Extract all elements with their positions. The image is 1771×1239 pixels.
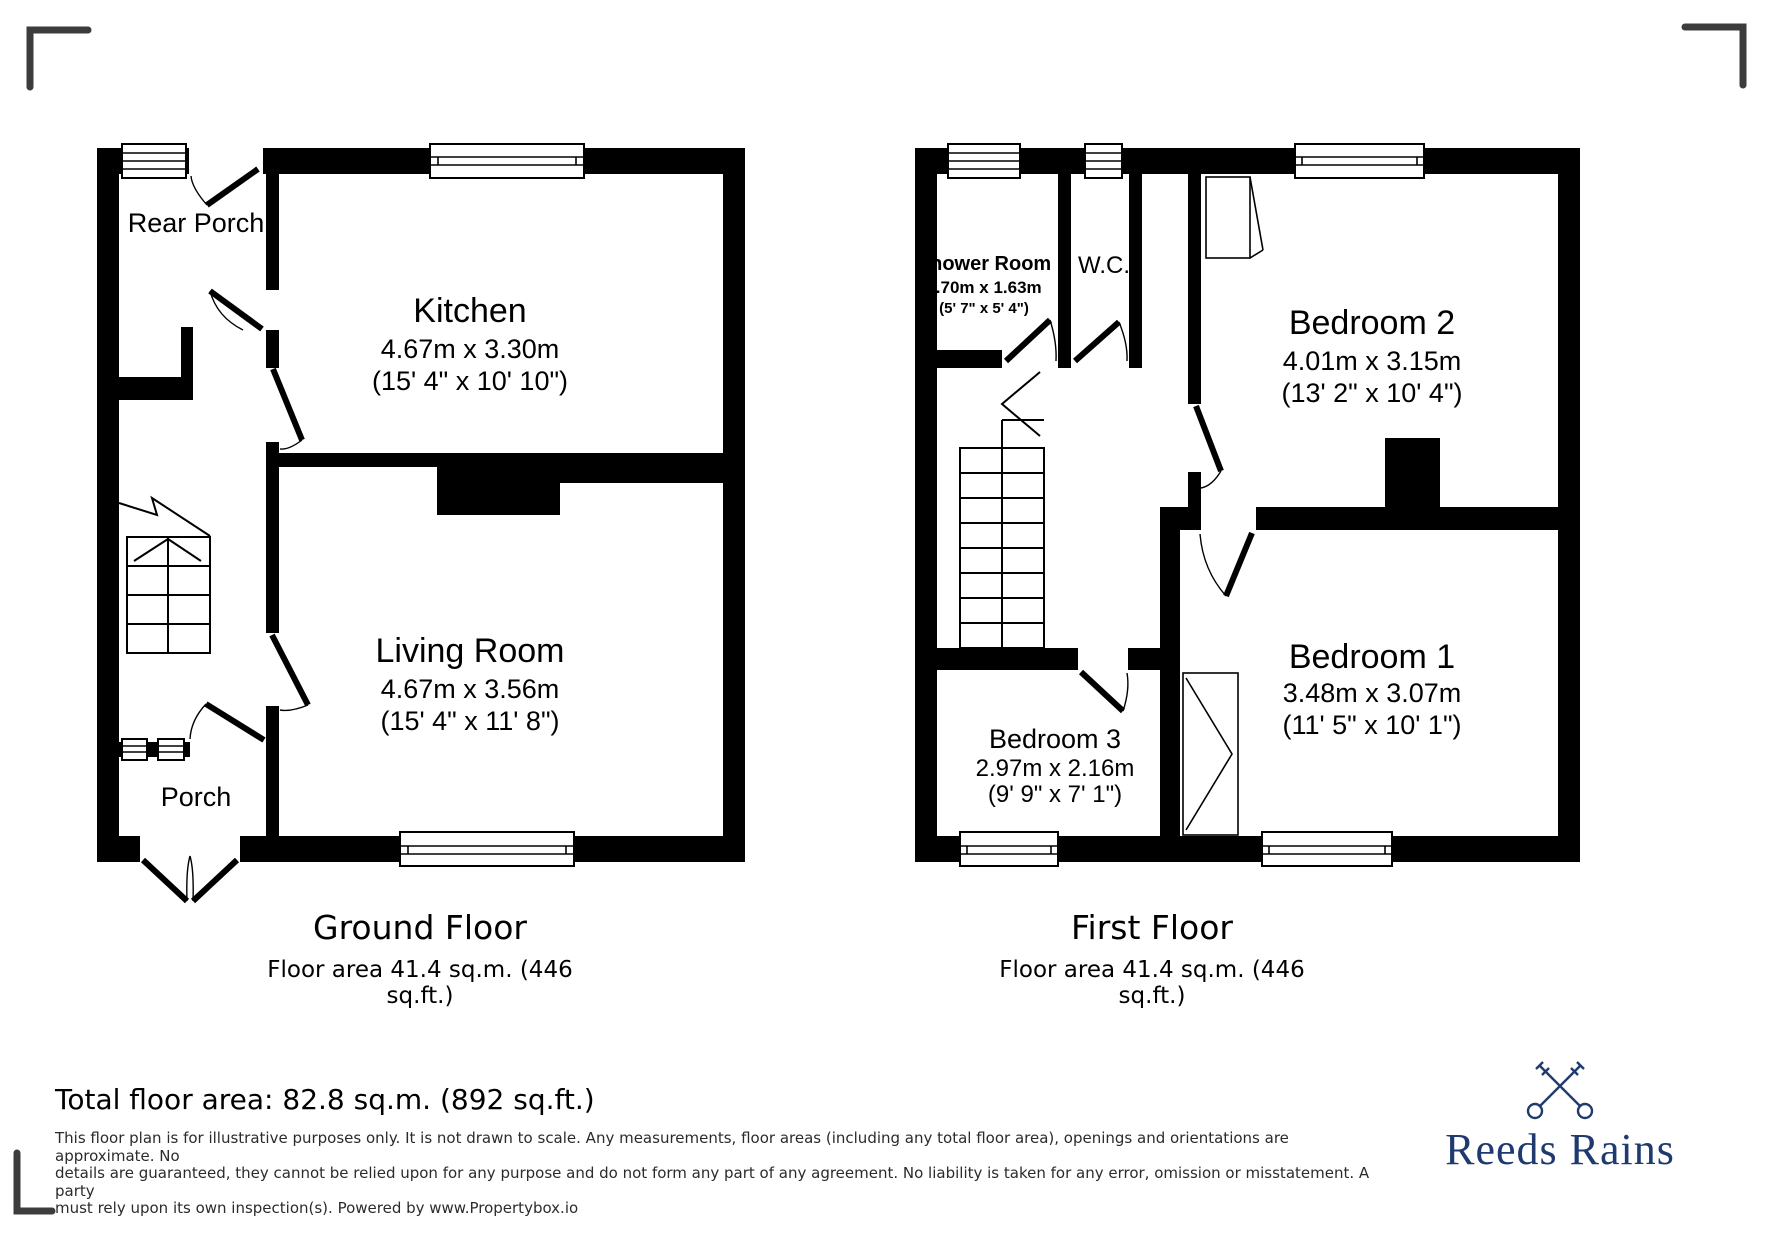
shower-room-dims-imperial: (5' 7" x 5' 4") xyxy=(939,300,1029,317)
crop-mark-bottom-left-icon xyxy=(17,1153,52,1211)
rear-porch-label: Rear Porch xyxy=(128,208,265,238)
kitchen-label: Kitchen xyxy=(413,292,526,330)
disclaimer: This floor plan is for illustrative purp… xyxy=(55,1130,1385,1218)
living-room-dims-imperial: (15' 4" x 11' 8") xyxy=(380,706,559,736)
bedroom1-door-icon xyxy=(1200,533,1252,596)
kitchen-window-icon xyxy=(430,144,584,178)
shower-room-door-icon xyxy=(1006,320,1056,361)
disclaimer-line-3: must rely upon its own inspection(s). Po… xyxy=(55,1200,1385,1218)
disclaimer-line-2: details are guaranteed, they cannot be r… xyxy=(55,1165,1385,1200)
bedroom3-door-icon xyxy=(1081,672,1128,711)
first-floor-title: First Floor xyxy=(972,908,1332,947)
floorplan-page: { "ground_floor": { "title": "Ground Flo… xyxy=(0,0,1771,1239)
ground-floor-title-block: Ground Floor Floor area 41.4 sq.m. (446 … xyxy=(240,908,600,1009)
living-room-label: Living Room xyxy=(376,632,565,670)
wc-door-icon xyxy=(1075,322,1127,361)
crossed-keys-icon xyxy=(1515,1058,1605,1122)
bedroom2-dims-metric: 4.01m x 3.15m xyxy=(1283,346,1462,376)
crop-mark-top-left-icon xyxy=(30,30,88,87)
ground-floor-plan: Rear Porch Kitchen 4.67m x 3.30m (15' 4"… xyxy=(97,144,745,901)
disclaimer-line-1: This floor plan is for illustrative purp… xyxy=(55,1130,1385,1165)
wc-label: W.C. xyxy=(1078,252,1130,279)
first-floor-stairs xyxy=(960,372,1044,648)
ground-floor-stairs xyxy=(119,498,210,653)
shower-room-dims-metric: 1.70m x 1.63m xyxy=(926,278,1041,297)
living-room-dims-metric: 4.67m x 3.56m xyxy=(381,674,560,704)
porch-label: Porch xyxy=(161,782,232,812)
bedroom3-dims-metric: 2.97m x 2.16m xyxy=(976,755,1135,782)
shower-room-window-icon xyxy=(948,144,1020,178)
living-room-window-icon xyxy=(400,832,574,866)
crop-mark-top-right-icon xyxy=(1685,27,1743,85)
first-floor-title-block: First Floor Floor area 41.4 sq.m. (446 s… xyxy=(972,908,1332,1009)
bedroom2-cupboard-icon xyxy=(1206,177,1263,258)
kitchen-dims-imperial: (15' 4" x 10' 10") xyxy=(372,366,568,396)
brand-name: Reeds Rains xyxy=(1400,1124,1720,1175)
bedroom2-window-icon xyxy=(1295,144,1424,178)
bedroom1-window-icon xyxy=(1262,832,1392,866)
bedroom1-dims-imperial: (11' 5" x 10' 1") xyxy=(1282,710,1461,740)
ground-floor-area: Floor area 41.4 sq.m. (446 sq.ft.) xyxy=(240,957,600,1009)
ground-floor-walls xyxy=(97,148,745,862)
kitchen-dims-metric: 4.67m x 3.30m xyxy=(381,334,560,364)
rear-porch-door-icon xyxy=(210,291,262,330)
bedroom2-dims-imperial: (13' 2" x 10' 4") xyxy=(1281,378,1462,408)
brand-logo: Reeds Rains xyxy=(1400,1058,1720,1175)
wc-window-icon xyxy=(1085,144,1122,178)
rear-porch-window-icon xyxy=(122,144,186,178)
bedroom1-dims-metric: 3.48m x 3.07m xyxy=(1283,678,1462,708)
bedroom3-window-icon xyxy=(960,832,1058,866)
bedroom1-label: Bedroom 1 xyxy=(1289,638,1455,676)
bedroom1-wardrobe-icon xyxy=(1183,673,1238,835)
porch-entry-door-icon xyxy=(190,704,264,740)
floorplan-canvas: Rear Porch Kitchen 4.67m x 3.30m (15' 4"… xyxy=(0,0,1771,1239)
bedroom2-label: Bedroom 2 xyxy=(1289,304,1455,342)
first-floor-plan: Shower Room 1.70m x 1.63m (5' 7" x 5' 4"… xyxy=(915,144,1580,866)
bedroom3-dims-imperial: (9' 9" x 7' 1") xyxy=(988,781,1122,808)
total-floor-area: Total floor area: 82.8 sq.m. (892 sq.ft.… xyxy=(55,1083,595,1116)
ground-floor-title: Ground Floor xyxy=(240,908,600,947)
bedroom3-label: Bedroom 3 xyxy=(989,724,1121,754)
shower-room-label: Shower Room xyxy=(917,253,1051,275)
first-floor-area: Floor area 41.4 sq.m. (446 sq.ft.) xyxy=(972,957,1332,1009)
